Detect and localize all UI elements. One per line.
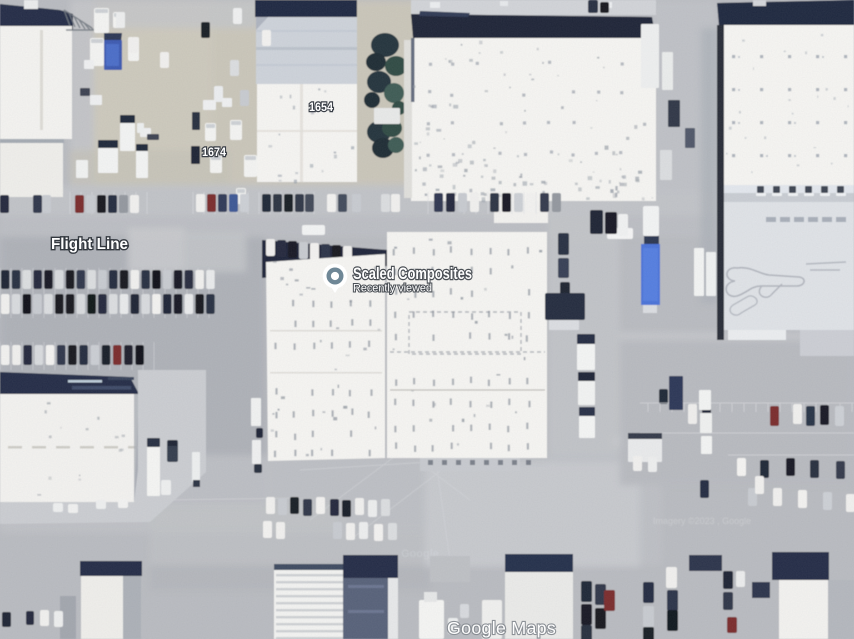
svg-text:1674: 1674 [202,147,227,159]
svg-text:Recently viewed: Recently viewed [353,283,432,295]
svg-text:Google Maps: Google Maps [447,618,556,638]
svg-text:Scaled Composites: Scaled Composites [353,265,472,283]
svg-text:1654: 1654 [309,102,334,114]
svg-text:Flight Line: Flight Line [51,236,128,253]
